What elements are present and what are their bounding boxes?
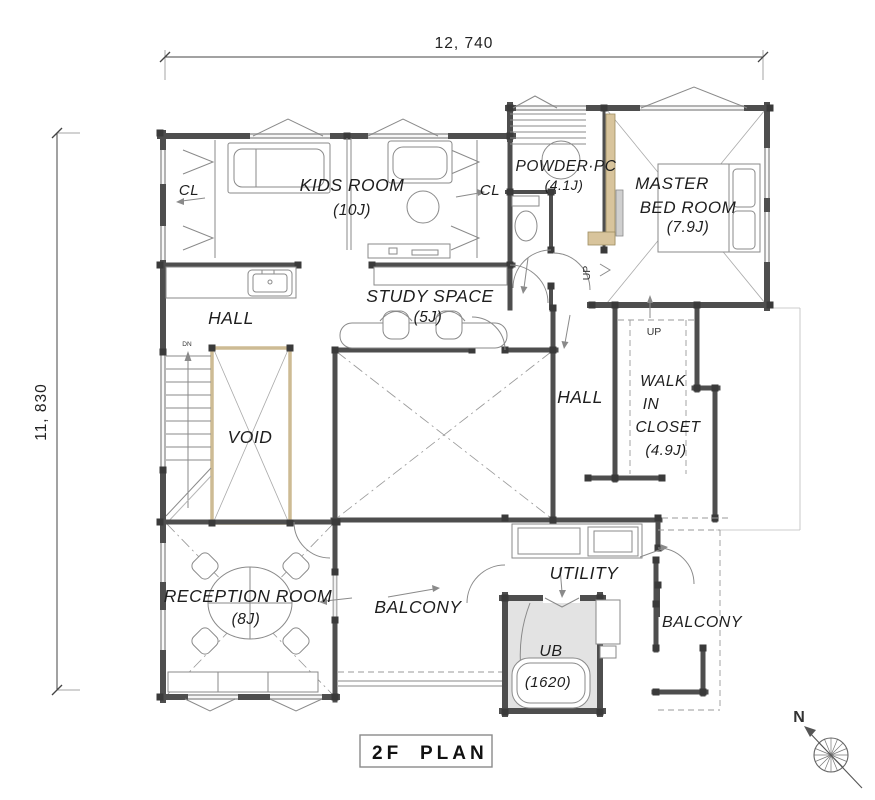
label-reception-size: (8J) [232, 611, 261, 628]
label-reception: RECEPTION ROOM [164, 586, 332, 606]
closet-left [176, 140, 215, 258]
label-ub: UB [539, 643, 562, 660]
label-hall-nw: HALL [208, 308, 254, 328]
label-wic-2: IN [643, 396, 660, 413]
floor-plan-drawing: 12, 740 11, 830 [0, 0, 875, 800]
label-cl-left: CL [179, 182, 199, 199]
label-study: STUDY SPACE [366, 286, 493, 306]
label-powder-size: (4.1J) [545, 177, 584, 193]
label-utility: UTILITY [550, 563, 619, 583]
toilet [512, 196, 539, 241]
label-wic-size: (4.9J) [645, 442, 686, 459]
floor-plan-sheet: 12, 740 11, 830 [0, 0, 875, 800]
closet-right [451, 140, 485, 258]
master-mirror [616, 190, 623, 236]
label-kids-size: (10J) [333, 202, 371, 219]
up-hall-annotation: UP [581, 264, 610, 280]
label-kids-room: KIDS ROOM [300, 175, 405, 195]
up-wic-label: UP [647, 326, 662, 338]
label-wic-1: WALK [640, 373, 686, 390]
label-balcony-s: BALCONY [374, 597, 462, 617]
kids-rug [407, 191, 439, 223]
label-balcony-se: BALCONY [662, 614, 743, 631]
north-arrow-head [804, 726, 816, 737]
kids-desk [368, 244, 450, 258]
north-label: N [793, 709, 805, 726]
powder-counter-hatch [510, 114, 586, 138]
label-study-size: (5J) [414, 309, 443, 326]
title-block: 2F PLAN [360, 735, 492, 767]
title-part2: PLAN [420, 743, 488, 764]
label-wic-3: CLOSET [635, 419, 701, 436]
title-part1: 2F [372, 743, 402, 764]
dimension-left-value: 11, 830 [33, 383, 50, 441]
label-hall-e: HALL [557, 387, 603, 407]
balcony-south-rails [338, 672, 502, 686]
hall-sink-counter [166, 267, 296, 298]
dimension-top: 12, 740 [160, 35, 768, 80]
water-heater [596, 600, 620, 658]
dimension-top-value: 12, 740 [435, 35, 494, 52]
roof-outline [716, 308, 800, 530]
label-powder: POWDER·PC [516, 158, 617, 175]
label-cl-right: CL [480, 182, 500, 199]
north-compass: N [793, 709, 862, 788]
dimension-left: 11, 830 [33, 128, 80, 695]
dn-label: DN [182, 341, 192, 348]
label-master-size: (7.9J) [667, 219, 710, 236]
up-hall-label: UP [581, 266, 593, 281]
up-wic-annotation: UP [647, 295, 662, 338]
label-ub-size: (1620) [525, 674, 571, 691]
label-void: VOID [228, 427, 273, 447]
reception-bench [168, 672, 318, 692]
study-counter [374, 267, 507, 285]
label-master-1: MASTER [635, 174, 709, 193]
label-master-2: BED ROOM [640, 198, 737, 217]
utility-counter [512, 524, 642, 558]
